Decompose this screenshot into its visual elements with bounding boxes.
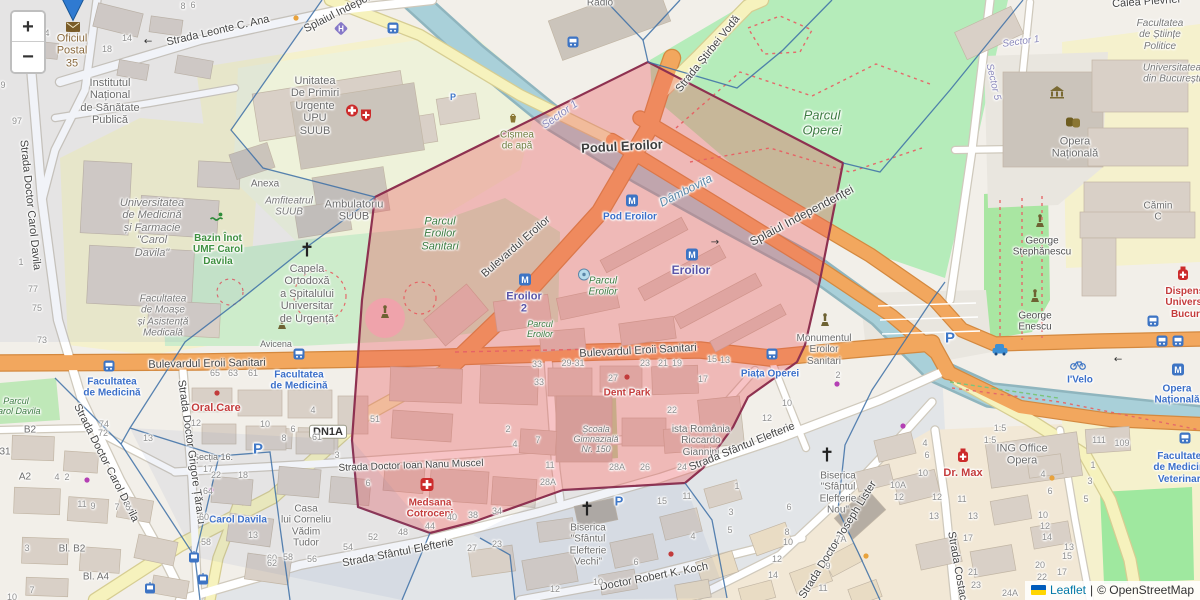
leaflet-link[interactable]: Leaflet [1050, 583, 1086, 597]
zoom-in-button[interactable]: + [12, 12, 44, 42]
ukraine-flag-icon [1031, 585, 1046, 595]
map-viewport[interactable]: HMMMM→→→ Oficiul Postal 35Institutul Naț… [0, 0, 1200, 600]
zoom-out-button[interactable]: − [12, 42, 44, 72]
attribution-separator: | [1090, 583, 1093, 597]
osm-copyright: © OpenStreetMap [1097, 583, 1194, 597]
attribution: Leaflet | © OpenStreetMap [1025, 581, 1200, 600]
zoom-control[interactable]: + − [10, 10, 46, 74]
map-canvas[interactable] [0, 0, 1200, 600]
